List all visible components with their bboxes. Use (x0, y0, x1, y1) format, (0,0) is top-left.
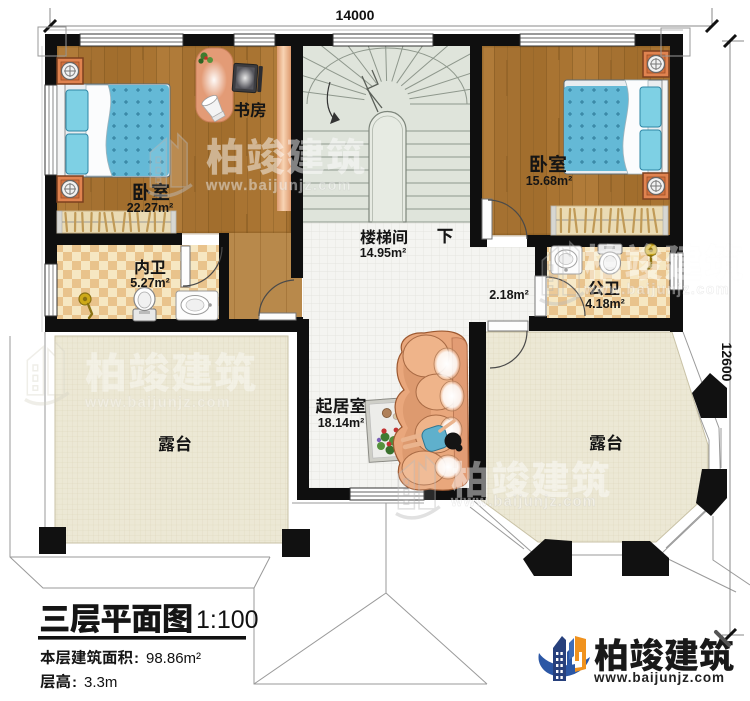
svg-text:18.14m²: 18.14m² (318, 416, 365, 430)
svg-text:www.baijunjz.com: www.baijunjz.com (583, 282, 730, 298)
svg-text::: : (72, 674, 77, 691)
svg-text:14.95m²: 14.95m² (360, 246, 407, 260)
svg-text:22.27m²: 22.27m² (127, 201, 174, 215)
svg-text:15.68m²: 15.68m² (526, 174, 573, 188)
svg-text:www.baijunjz.com: www.baijunjz.com (205, 178, 352, 194)
svg-text:www.baijunjz.com: www.baijunjz.com (593, 670, 725, 685)
svg-text:12600: 12600 (719, 343, 735, 382)
svg-text:2.18m²: 2.18m² (489, 288, 529, 302)
svg-text:4.18m²: 4.18m² (585, 297, 625, 311)
svg-text:14000: 14000 (336, 7, 375, 23)
svg-text:98.86m²: 98.86m² (146, 650, 201, 667)
svg-text:www.baijunjz.com: www.baijunjz.com (450, 494, 597, 510)
svg-text:5.27m²: 5.27m² (130, 276, 170, 290)
svg-text:www.baijunjz.com: www.baijunjz.com (84, 395, 231, 411)
svg-text:3.3m: 3.3m (84, 674, 117, 691)
svg-text:1:100: 1:100 (196, 606, 259, 634)
svg-text::: : (134, 650, 139, 667)
